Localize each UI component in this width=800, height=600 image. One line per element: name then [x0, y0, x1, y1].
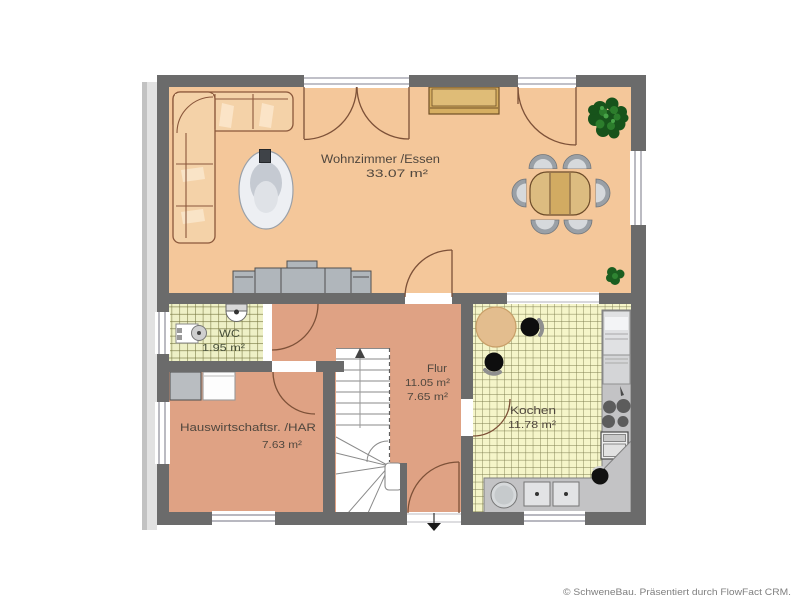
svg-text:11.78 m²: 11.78 m²: [508, 419, 557, 431]
svg-text:Kochen: Kochen: [510, 405, 556, 417]
svg-text:© SchweneBau. Präsentiert durc: © SchweneBau. Präsentiert durch FlowFact…: [563, 587, 791, 598]
svg-text:Flur: Flur: [427, 363, 447, 375]
svg-text:11.05 m²: 11.05 m²: [405, 377, 451, 389]
svg-text:Hauswirtschaftsr. /HAR: Hauswirtschaftsr. /HAR: [180, 422, 316, 434]
svg-text:WC: WC: [219, 328, 240, 340]
svg-text:7.65 m²: 7.65 m²: [407, 391, 449, 403]
svg-text:1.95 m²: 1.95 m²: [202, 343, 246, 354]
svg-text:Wohnzimmer /Essen: Wohnzimmer /Essen: [321, 154, 440, 166]
svg-text:33.07 m²: 33.07 m²: [366, 168, 428, 180]
svg-text:7.63 m²: 7.63 m²: [262, 439, 303, 451]
